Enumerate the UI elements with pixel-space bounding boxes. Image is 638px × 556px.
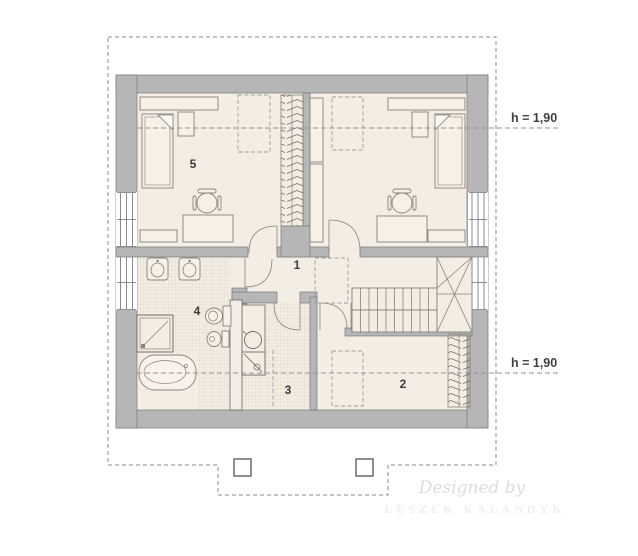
washbasin-1 [147, 258, 168, 280]
floor-plan-drawing: 5 1 4 3 2 h = 1,90 h = 1,90 Designed by … [0, 0, 638, 556]
height-label-lower: h = 1,90 [511, 356, 557, 370]
bidet [207, 331, 229, 347]
wall-mid-right [360, 247, 488, 257]
room-label-4: 4 [194, 304, 201, 318]
desk [377, 216, 427, 242]
watermark-script: Designed by [418, 478, 526, 498]
utility-unit [242, 352, 265, 375]
exterior-wall-top [116, 75, 488, 93]
nightstand [178, 112, 194, 136]
washbasin-2 [179, 258, 200, 280]
window-left-upper [116, 192, 137, 247]
room-label-5: 5 [190, 157, 197, 171]
shower [137, 315, 173, 352]
wardrobe-room5 [281, 95, 303, 226]
height-label-upper: h = 1,90 [511, 111, 557, 125]
low-cabinet [428, 230, 465, 242]
floor-plan-stage: 5 1 4 3 2 h = 1,90 h = 1,90 Designed by … [0, 0, 638, 556]
wall-chunk-under-wardrobe [281, 226, 310, 257]
exterior-wall-bottom [116, 410, 488, 428]
bed [142, 114, 173, 188]
wardrobe-bedroom-right-b [310, 164, 323, 242]
wall-room3-room2 [310, 297, 317, 410]
wall-mid-left [116, 247, 248, 257]
room-label-3: 3 [285, 383, 292, 397]
wardrobe-bedroom-right-a [310, 98, 323, 162]
bed [435, 114, 465, 188]
wc-installation-wall [230, 300, 242, 410]
desk [183, 215, 233, 242]
porch-post-right [356, 459, 373, 476]
shelf [140, 97, 218, 110]
porch-post-left [234, 459, 251, 476]
window-left-lower [116, 255, 137, 310]
room-label-1: 1 [294, 258, 301, 272]
room-label-2: 2 [400, 377, 407, 391]
watermark-caps: LESZEK KALANDYK [384, 502, 565, 516]
toilet [206, 306, 232, 326]
nightstand [412, 112, 428, 137]
wardrobe-room2 [448, 334, 470, 407]
shelf [388, 98, 465, 110]
window-right-upper [468, 192, 488, 247]
wall-between-bedrooms [303, 93, 310, 226]
low-cabinet [140, 230, 177, 242]
